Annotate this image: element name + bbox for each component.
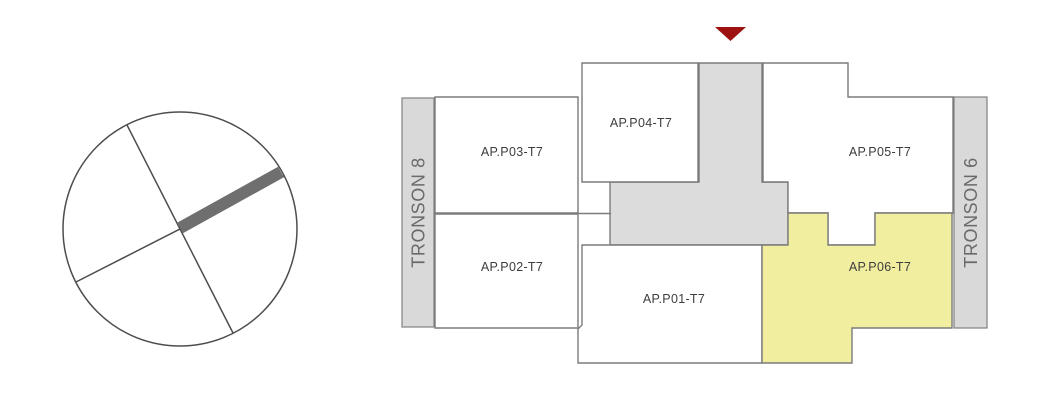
floorplan-canvas: TRONSON 8 TRONSON 6 AP.P03-T7 AP.P04-T7 … bbox=[0, 0, 1062, 402]
wing-tronson-8[interactable]: TRONSON 8 bbox=[402, 98, 434, 327]
wing-tronson-8-label: TRONSON 8 bbox=[409, 157, 429, 267]
apartment-ap-p06-label: AP.P06-T7 bbox=[849, 260, 911, 274]
apartment-ap-p01[interactable]: AP.P01-T7 bbox=[578, 245, 762, 363]
apartment-ap-p02[interactable]: AP.P02-T7 bbox=[435, 214, 578, 328]
compass bbox=[63, 112, 297, 346]
entrance-marker-icon bbox=[715, 27, 746, 41]
apartment-floor-selector: TRONSON 8 TRONSON 6 AP.P03-T7 AP.P04-T7 … bbox=[0, 0, 1062, 402]
wing-tronson-6-label: TRONSON 6 bbox=[961, 157, 981, 267]
compass-needle-icon bbox=[180, 172, 281, 228]
apartment-ap-p05-label: AP.P05-T7 bbox=[849, 145, 911, 159]
apartment-ap-p03[interactable]: AP.P03-T7 bbox=[435, 97, 578, 213]
apartment-ap-p03-label: AP.P03-T7 bbox=[481, 145, 543, 159]
apartment-ap-p01-label: AP.P01-T7 bbox=[643, 292, 705, 306]
wing-tronson-6[interactable]: TRONSON 6 bbox=[954, 97, 987, 328]
apartment-ap-p04[interactable]: AP.P04-T7 bbox=[582, 63, 698, 182]
apartment-ap-p02-label: AP.P02-T7 bbox=[481, 260, 543, 274]
apartment-ap-p04-label: AP.P04-T7 bbox=[610, 116, 672, 130]
